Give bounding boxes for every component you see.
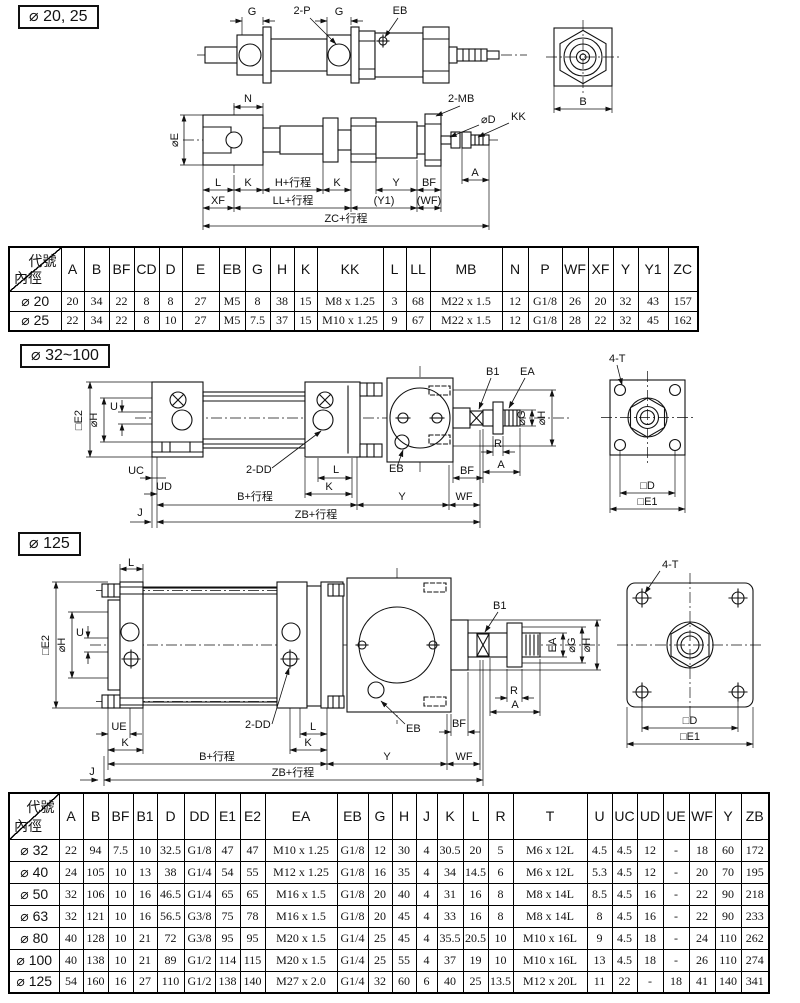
dim-label-4t: 4-T	[609, 353, 626, 365]
table-cell: 160	[83, 971, 108, 993]
table-cell: M8 x 1.25	[317, 291, 383, 311]
table-cell: 18	[663, 971, 689, 993]
table-row: ⌀ 202034228827M583815M8 x 1.25368M22 x 1…	[9, 291, 698, 311]
col-header-ZB: ZB	[741, 793, 769, 839]
dim-label-oe: ⌀E	[169, 133, 181, 147]
table-cell: 75	[215, 905, 240, 927]
section-title-125: ⌀ 125	[18, 532, 81, 556]
table-cell: 21	[133, 927, 157, 949]
dim-label-a: A	[511, 699, 519, 711]
table-cell: 114	[215, 949, 240, 971]
table-cell: 47	[240, 839, 265, 861]
dim-label-eb: EB	[393, 5, 408, 17]
table-cell: 138	[83, 949, 108, 971]
dim-label-wf: WF	[455, 491, 472, 503]
dim-label-bf: BF	[460, 465, 474, 477]
table-cell: 12	[368, 839, 392, 861]
dim-label-bf: BF	[422, 177, 436, 189]
table-cell: 10	[108, 949, 133, 971]
col-header-EB: EB	[337, 793, 368, 839]
table-cell: 10	[133, 839, 157, 861]
dim-label-2mb: 2-MB	[448, 93, 474, 105]
row-label: ⌀ 32	[9, 839, 59, 861]
dim-label-g1: G	[248, 6, 257, 18]
table-cell: 25	[368, 927, 392, 949]
dim-label-oh-right: ⌀H	[581, 638, 593, 653]
table-cell: 4.5	[612, 861, 637, 883]
table-cell: 4	[416, 839, 437, 861]
table-cell: 67	[406, 311, 430, 331]
table-cell: 72	[157, 927, 184, 949]
dim-label-od: ⌀D	[481, 114, 496, 126]
table-cell: 12	[502, 291, 528, 311]
table-cell: 18	[637, 949, 663, 971]
dim-label-u: U	[110, 401, 118, 413]
row-label: ⌀ 125	[9, 971, 59, 993]
dim-label-e2: □E2	[73, 410, 85, 430]
table-cell: -	[637, 971, 663, 993]
table-cell: 4	[416, 927, 437, 949]
table-cell: 40	[437, 971, 463, 993]
table-cell: 95	[240, 927, 265, 949]
table-cell: 37	[437, 949, 463, 971]
table-cell: 110	[715, 927, 741, 949]
table-cell: M27 x 2.0	[265, 971, 337, 993]
col-header-BF: BF	[109, 247, 134, 291]
table-cell: M8 x 14L	[513, 883, 587, 905]
table-cell: 8	[488, 883, 513, 905]
dim-label-k2: K	[333, 177, 341, 189]
table-cell: 25	[368, 949, 392, 971]
table-cell: M16 x 1.5	[265, 883, 337, 905]
drawing-125-main-view: L □E2 ⌀H U B1 EA ⌀G ⌀H R A EB BF 2-DD UE…	[40, 556, 605, 788]
table-cell: 45	[392, 905, 416, 927]
table-cell: 12	[637, 839, 663, 861]
table-cell: -	[663, 839, 689, 861]
table-cell: 7.5	[108, 839, 133, 861]
col-header-EB: EB	[219, 247, 245, 291]
table-cell: 68	[406, 291, 430, 311]
drawing-20-25-dimension-view: ⌀E N 2-MB ⌀D KK A L K H+行程 K Y BF XF LL+…	[98, 90, 538, 242]
table-cell: 15	[294, 311, 317, 331]
table-cell: M10 x 1.25	[317, 311, 383, 331]
table-cell: 4.5	[612, 949, 637, 971]
dim-label-k2: K	[304, 737, 312, 749]
dim-label-ll-stroke: LL+行程	[273, 194, 314, 207]
table-cell: 10	[108, 861, 133, 883]
dim-label-sqe1: □E1	[680, 731, 700, 743]
table-cell: 18	[689, 839, 715, 861]
col-header-CD: CD	[134, 247, 159, 291]
table-cell: 20	[588, 291, 613, 311]
table-cell: 4.5	[612, 927, 637, 949]
table-cell: 13	[587, 949, 612, 971]
table-cell: 55	[392, 949, 416, 971]
table-cell: 4	[416, 861, 437, 883]
dim-label-oh-right: ⌀H	[536, 411, 548, 426]
table-cell: 6	[488, 861, 513, 883]
table-cell: 13.5	[488, 971, 513, 993]
table-cell: 10	[108, 883, 133, 905]
table-row: ⌀ 8040128102172G3/89595M20 x 1.5G1/42545…	[9, 927, 769, 949]
dim-label-wf: (WF)	[417, 195, 441, 207]
table-cell: 4	[416, 949, 437, 971]
dim-label-ue: UE	[111, 721, 126, 733]
dim-label-b-stroke: B+行程	[199, 750, 235, 763]
table-cell: 89	[157, 949, 184, 971]
table-cell: M12 x 20L	[513, 971, 587, 993]
table-cell: 8	[159, 291, 182, 311]
table-cell: M22 x 1.5	[430, 291, 502, 311]
table-cell: M22 x 1.5	[430, 311, 502, 331]
col-header-G: G	[245, 247, 270, 291]
table-cell: 121	[83, 905, 108, 927]
table-cell: 10	[108, 927, 133, 949]
dim-label-kk: KK	[511, 111, 526, 123]
table-cell: 20	[368, 883, 392, 905]
table-cell: -	[663, 883, 689, 905]
table-row: ⌀ 4024105101338G1/45455M12 x 1.25G1/8163…	[9, 861, 769, 883]
table-cell: 35	[392, 861, 416, 883]
table-cell: 40	[392, 883, 416, 905]
table-cell: 15	[294, 291, 317, 311]
col-header-U: U	[587, 793, 612, 839]
table-cell: 27	[133, 971, 157, 993]
col-header-WF: WF	[689, 793, 715, 839]
col-header-EA: EA	[265, 793, 337, 839]
table-cell: 14.5	[463, 861, 488, 883]
dim-label-b: B	[579, 96, 586, 108]
col-header-L: L	[383, 247, 406, 291]
drawing-32-100-end-view: 4-T □D □E1	[595, 352, 765, 517]
col-header-UD: UD	[637, 793, 663, 839]
table-cell: 22	[588, 311, 613, 331]
dim-label-l: L	[310, 721, 316, 733]
table-cell: 22	[109, 291, 134, 311]
table-cell: 110	[715, 949, 741, 971]
table-cell: 54	[59, 971, 83, 993]
table-cell: 56.5	[157, 905, 184, 927]
dim-label-ud: UD	[156, 481, 172, 493]
table-cell: G1/8	[337, 905, 368, 927]
col-header-Y1: Y1	[638, 247, 668, 291]
table-cell: 34	[84, 311, 109, 331]
table-cell: 22	[59, 839, 83, 861]
table-row: ⌀ 10040138102189G1/2114115M20 x 1.5G1/42…	[9, 949, 769, 971]
table-cell: 32	[59, 905, 83, 927]
table-cell: 6	[416, 971, 437, 993]
drawing-125-end-view: 4-T □D □E1	[612, 558, 767, 763]
table-cell: 27	[182, 291, 219, 311]
dim-label-zb-stroke: ZB+行程	[295, 508, 337, 521]
dim-label-g2: G	[335, 6, 344, 18]
table-cell: 16	[463, 905, 488, 927]
table-cell: 30	[392, 839, 416, 861]
table-cell: 8	[488, 905, 513, 927]
table-cell: 32.5	[157, 839, 184, 861]
col-header-DD: DD	[184, 793, 215, 839]
col-header-A: A	[61, 247, 84, 291]
dim-label-r: R	[494, 438, 502, 450]
table-cell: 3	[383, 291, 406, 311]
row-label: ⌀ 50	[9, 883, 59, 905]
table-row: ⌀ 6332121101656.5G3/87578M16 x 1.5G1/820…	[9, 905, 769, 927]
table-cell: 138	[215, 971, 240, 993]
table-cell: 16	[463, 883, 488, 905]
dim-label-j: J	[89, 766, 95, 778]
table-cell: 5.3	[587, 861, 612, 883]
col-header-B: B	[83, 793, 108, 839]
table-row: ⌀ 5032106101646.5G1/46565M16 x 1.5G1/820…	[9, 883, 769, 905]
dim-label-oh-left: ⌀H	[88, 413, 100, 428]
table-cell: 13	[133, 861, 157, 883]
table-cell: G1/2	[184, 949, 215, 971]
table-cell: 140	[715, 971, 741, 993]
table-cell: 41	[689, 971, 715, 993]
dim-label-ea: EA	[547, 637, 559, 652]
dim-label-bf: BF	[452, 718, 466, 730]
col-header-E2: E2	[240, 793, 265, 839]
table-cell: 4	[416, 905, 437, 927]
col-header-H: H	[392, 793, 416, 839]
dim-label-eb: EB	[406, 723, 421, 735]
table-cell: 274	[741, 949, 769, 971]
table-cell: G1/8	[337, 861, 368, 883]
dim-label-y: Y	[392, 177, 400, 189]
table-cell: -	[663, 949, 689, 971]
col-header-H: H	[270, 247, 294, 291]
table-cell: -	[663, 927, 689, 949]
table-cell: 10	[488, 927, 513, 949]
table-cell: 65	[240, 883, 265, 905]
table-cell: 115	[240, 949, 265, 971]
dim-label-uc: UC	[128, 465, 144, 477]
table-cell: 140	[240, 971, 265, 993]
table-cell: 60	[715, 839, 741, 861]
table-cell: 195	[741, 861, 769, 883]
dim-label-oh-left: ⌀H	[56, 638, 68, 653]
dim-label-h-stroke: H+行程	[275, 176, 311, 189]
table-cell: M5	[219, 291, 245, 311]
dim-label-4t: 4-T	[662, 559, 679, 571]
table-cell: 22	[61, 311, 84, 331]
col-header-E1: E1	[215, 793, 240, 839]
table-cell: 37	[270, 311, 294, 331]
table-cell: 4.5	[587, 839, 612, 861]
drawing-20-25-basic-view: G 2-P G EB	[195, 3, 530, 98]
table-cell: M6 x 12L	[513, 861, 587, 883]
dim-label-sqe1: □E1	[637, 496, 657, 508]
table-cell: M6 x 12L	[513, 839, 587, 861]
table-cell: 40	[59, 949, 83, 971]
table-cell: 16	[108, 971, 133, 993]
dim-label-2dd: 2-DD	[245, 719, 271, 731]
table-cell: 16	[133, 883, 157, 905]
table-cell: 20.5	[463, 927, 488, 949]
col-header-D: D	[157, 793, 184, 839]
table-cell: 233	[741, 905, 769, 927]
table-cell: 16	[133, 905, 157, 927]
table-cell: 32	[59, 883, 83, 905]
col-header-D: D	[159, 247, 182, 291]
dim-label-zc-stroke: ZC+行程	[324, 212, 367, 225]
col-header-WF: WF	[562, 247, 588, 291]
dim-label-l: L	[333, 464, 339, 476]
catalog-page: ⌀ 20, 25	[0, 0, 800, 1003]
table-cell: 32	[613, 311, 638, 331]
dim-label-l-top: L	[128, 557, 134, 569]
table-cell: 22	[689, 883, 715, 905]
dim-label-ea: EA	[520, 366, 535, 378]
table-cell: 46.5	[157, 883, 184, 905]
row-label: ⌀ 40	[9, 861, 59, 883]
table-cell: 34	[84, 291, 109, 311]
table-cell: 54	[215, 861, 240, 883]
table-cell: 31	[437, 883, 463, 905]
row-label: ⌀ 80	[9, 927, 59, 949]
table-cell: -	[663, 905, 689, 927]
col-header-B: B	[84, 247, 109, 291]
dim-label-y: Y	[398, 491, 406, 503]
dim-label-sqd: □D	[640, 480, 655, 492]
dim-label-k1: K	[244, 177, 252, 189]
col-header-B1: B1	[133, 793, 157, 839]
table-cell: M20 x 1.5	[265, 927, 337, 949]
table-cell: 7.5	[245, 311, 270, 331]
col-header-KK: KK	[317, 247, 383, 291]
dim-label-u: U	[76, 627, 84, 639]
table-cell: 10	[108, 905, 133, 927]
table-cell: 10	[159, 311, 182, 331]
table-cell: M12 x 1.25	[265, 861, 337, 883]
col-header-K: K	[437, 793, 463, 839]
table-cell: M16 x 1.5	[265, 905, 337, 927]
table-cell: M10 x 1.25	[265, 839, 337, 861]
table-cell: 12	[637, 861, 663, 883]
table-cell: 21	[133, 949, 157, 971]
dim-label-og: ⌀G	[566, 637, 578, 652]
drawing-32-100-main-view: □E2 ⌀H U B1 EA ⌀G ⌀H R A EB BF 2-DD L K …	[40, 350, 600, 535]
row-label: ⌀ 25	[9, 311, 61, 331]
dim-label-b-stroke: B+行程	[237, 490, 273, 503]
col-header-G: G	[368, 793, 392, 839]
table-cell: 30.5	[437, 839, 463, 861]
table-cell: 106	[83, 883, 108, 905]
table-cell: 8.5	[587, 883, 612, 905]
table-cell: 20	[689, 861, 715, 883]
table-cell: 65	[215, 883, 240, 905]
table-cell: G1/4	[337, 927, 368, 949]
table-cell: 22	[612, 971, 637, 993]
table-cell: 9	[587, 927, 612, 949]
table-cell: 25	[463, 971, 488, 993]
dim-label-l: L	[215, 177, 221, 189]
table-cell: 32	[368, 971, 392, 993]
table-cell: 90	[715, 905, 741, 927]
row-label: ⌀ 100	[9, 949, 59, 971]
table-cell: 60	[392, 971, 416, 993]
table-cell: 105	[83, 861, 108, 883]
table-cell: 43	[638, 291, 668, 311]
table-cell: 95	[215, 927, 240, 949]
table-cell: 341	[741, 971, 769, 993]
table-cell: 20	[368, 905, 392, 927]
table-cell: 10	[488, 949, 513, 971]
table-cell: 8	[134, 311, 159, 331]
table-cell: 78	[240, 905, 265, 927]
dim-label-b1: B1	[486, 366, 499, 378]
table-cell: G1/8	[337, 883, 368, 905]
table-cell: 9	[383, 311, 406, 331]
table-cell: G1/2	[184, 971, 215, 993]
table-cell: 27	[182, 311, 219, 331]
table-cell: 16	[368, 861, 392, 883]
table-cell: 4.5	[612, 883, 637, 905]
table-cell: 47	[215, 839, 240, 861]
col-header-Y: Y	[715, 793, 741, 839]
table-cell: 24	[689, 927, 715, 949]
table-cell: G1/8	[337, 839, 368, 861]
col-header-BF: BF	[108, 793, 133, 839]
col-header-K: K	[294, 247, 317, 291]
table-cell: -	[663, 861, 689, 883]
dim-label-xf: XF	[211, 195, 225, 207]
table-cell: 20	[463, 839, 488, 861]
row-label: ⌀ 63	[9, 905, 59, 927]
col-header-Y: Y	[613, 247, 638, 291]
table-cell: G3/8	[184, 927, 215, 949]
dim-label-e2: □E2	[40, 635, 52, 655]
dim-label-y1: (Y1)	[374, 195, 395, 207]
table-cell: 20	[61, 291, 84, 311]
table-cell: 94	[83, 839, 108, 861]
drawing-20-25-end-view: B	[546, 20, 638, 125]
table-cell: M20 x 1.5	[265, 949, 337, 971]
col-header-ZC: ZC	[668, 247, 698, 291]
col-header-P: P	[528, 247, 562, 291]
table-cell: 26	[689, 949, 715, 971]
dim-label-sqd: □D	[683, 715, 698, 727]
dim-label-eb: EB	[389, 463, 404, 475]
dim-label-a: A	[497, 459, 505, 471]
dim-label-y: Y	[383, 751, 391, 763]
table-cell: 33	[437, 905, 463, 927]
table-corner-header: 代號內徑	[9, 793, 59, 839]
table-cell: 90	[715, 883, 741, 905]
table-corner-header: 代號內徑	[9, 247, 61, 291]
table-cell: 35.5	[437, 927, 463, 949]
table-cell: G1/8	[528, 291, 562, 311]
col-header-UC: UC	[612, 793, 637, 839]
table-cell: 4	[416, 883, 437, 905]
col-header-UE: UE	[663, 793, 689, 839]
table-cell: G1/8	[528, 311, 562, 331]
table-row: ⌀ 2522342281027M57.53715M10 x 1.25967M22…	[9, 311, 698, 331]
table-cell: 8	[134, 291, 159, 311]
section-title-20-25: ⌀ 20, 25	[18, 5, 99, 29]
table-cell: 32	[613, 291, 638, 311]
col-header-N: N	[502, 247, 528, 291]
table-cell: 128	[83, 927, 108, 949]
table-cell: 70	[715, 861, 741, 883]
dim-label-wf: WF	[455, 751, 472, 763]
table-cell: 4.5	[612, 839, 637, 861]
dim-label-b1: B1	[493, 600, 506, 612]
table-row: ⌀ 3222947.51032.5G1/84747M10 x 1.25G1/81…	[9, 839, 769, 861]
table-cell: 24	[59, 861, 83, 883]
table-cell: G1/8	[184, 839, 215, 861]
col-header-T: T	[513, 793, 587, 839]
